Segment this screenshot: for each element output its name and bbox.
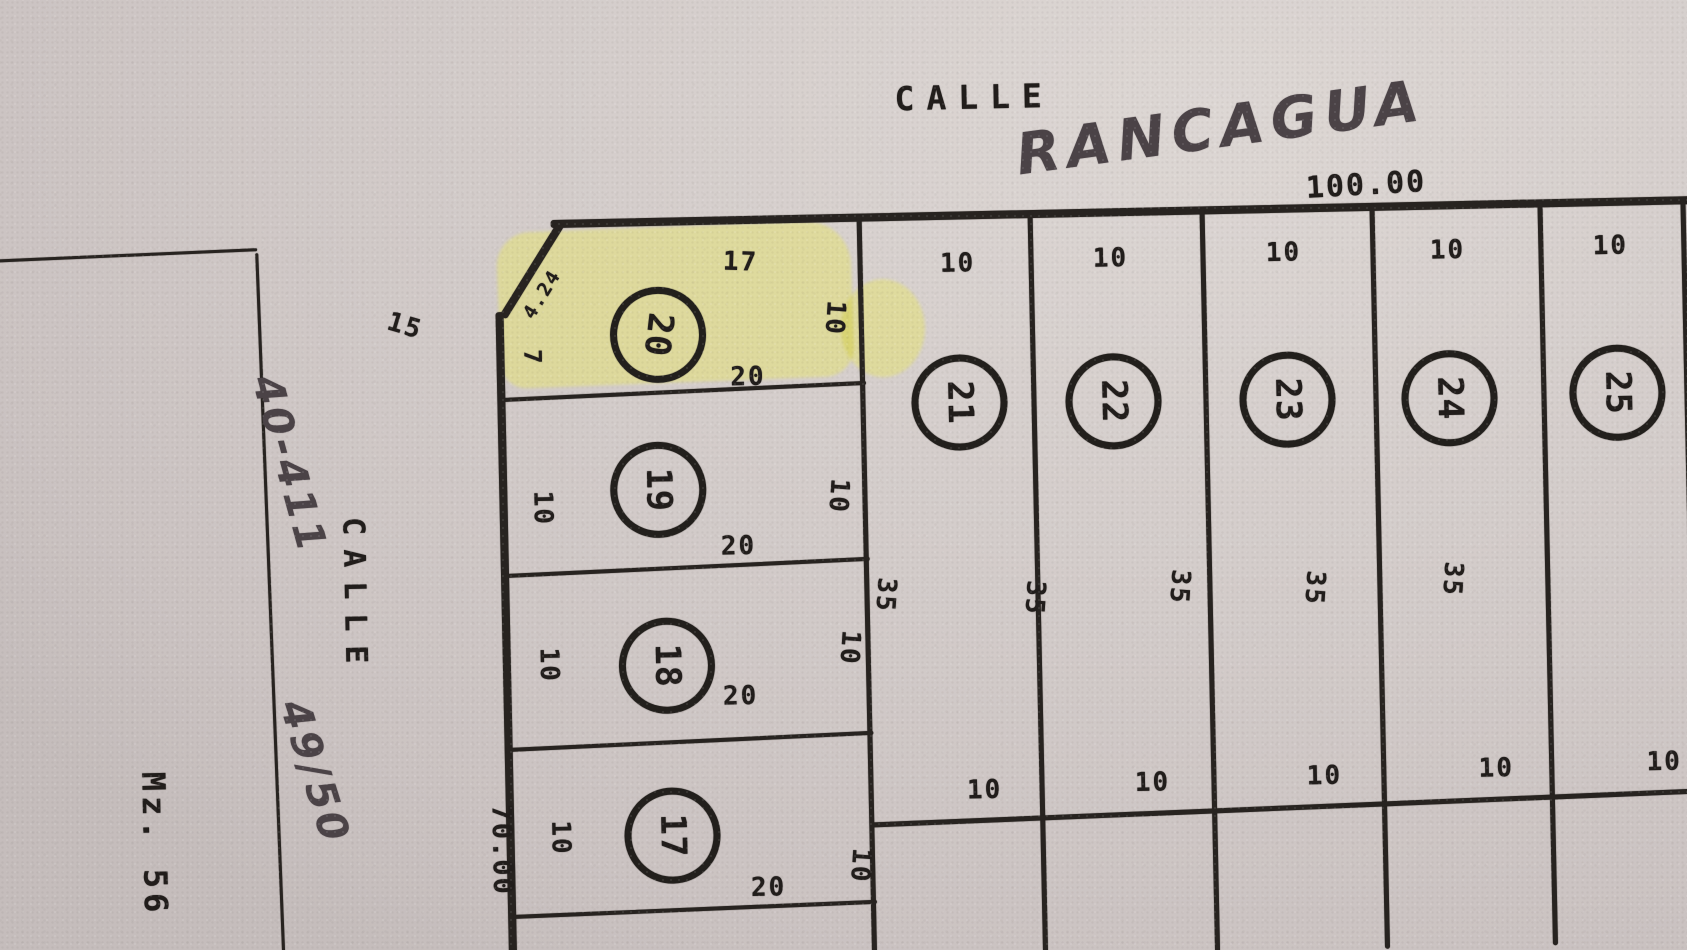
- lot23-top-dim: 10: [1265, 237, 1301, 268]
- lot19-bottom-dim: 20: [721, 531, 757, 562]
- lot21-circle: 21: [911, 354, 1009, 452]
- lot25-top-dim: 10: [1592, 231, 1628, 262]
- top-street-name: CALLE: [894, 76, 1054, 118]
- lot22-circle: 22: [1065, 352, 1163, 450]
- left-block-top-line: [0, 248, 257, 263]
- lot20-bottom-dim: 20: [730, 362, 766, 393]
- lot24-circle: 24: [1401, 349, 1499, 447]
- lot25-number: 25: [1597, 370, 1638, 415]
- lot24-side-dim: 35: [1298, 570, 1330, 607]
- lot25-side-dim: 35: [1436, 561, 1468, 598]
- lot20-top-dim: 17: [722, 247, 758, 278]
- divider-lot24-25: [1537, 201, 1558, 945]
- divider-lot22-23: [1199, 208, 1220, 950]
- lot24-top-dim: 10: [1429, 235, 1465, 266]
- lot17-bottom-dim: 20: [751, 872, 787, 903]
- lot18-number: 18: [646, 643, 687, 688]
- frontage-total-dim: 100.00: [1305, 164, 1427, 206]
- lot25-circle: 25: [1568, 344, 1666, 442]
- lot17-left-dim: 10: [545, 820, 576, 856]
- back-row-dim-1: 10: [967, 775, 1003, 806]
- left-street-name: CALLE: [335, 517, 373, 678]
- back-row-dim-2: 10: [1135, 767, 1171, 798]
- lot23-side-dim: 35: [1163, 568, 1195, 605]
- lot23-number: 23: [1267, 377, 1308, 422]
- lot22-number: 22: [1093, 379, 1134, 424]
- lot20-right-dim: 10: [819, 300, 851, 337]
- lot19-right-dim: 10: [822, 477, 854, 514]
- lot18-right-dim: 10: [833, 629, 865, 666]
- highlight-bleed: [840, 278, 926, 378]
- divider-lot19-18: [502, 557, 870, 578]
- block-depth-dim: 70.00: [485, 804, 518, 896]
- upper-left-dim-15: 15: [384, 307, 426, 346]
- manzana-label: Mz. 56: [134, 771, 175, 917]
- left-block-right-line: [255, 253, 285, 950]
- lot19-number: 19: [638, 467, 679, 512]
- lot18-bottom-dim: 20: [723, 681, 759, 712]
- lot17-circle: 17: [624, 787, 722, 885]
- handwritten-note-lower: 49/50: [270, 694, 360, 851]
- back-row-dim-3: 10: [1306, 761, 1342, 792]
- lot21-side-dim: 35: [869, 577, 901, 614]
- lot19-left-dim: 10: [527, 490, 558, 526]
- lot19-circle: 19: [609, 441, 707, 539]
- lot23-circle: 23: [1239, 351, 1337, 449]
- divider-lot23-24: [1369, 205, 1390, 949]
- lot17-number: 17: [652, 813, 693, 858]
- back-row-dim-5: 10: [1646, 747, 1682, 778]
- lot21-top-dim: 10: [940, 248, 976, 279]
- divider-lot18-17: [506, 731, 874, 752]
- lot22-side-dim: 35: [1018, 579, 1050, 616]
- plan-drawing: CALLE RANCAGUA 100.00 CALLE 40-411 49/50…: [0, 0, 1687, 950]
- lot18-left-dim: 10: [534, 647, 565, 683]
- lot24-number: 24: [1429, 376, 1470, 421]
- lot20-number: 20: [636, 311, 681, 360]
- lot20-left-dim: 7: [518, 349, 546, 366]
- main-block-top-boundary: [551, 196, 1687, 228]
- divider-lot25-right: [1680, 198, 1687, 942]
- handwritten-note-upper: 40-411: [242, 370, 336, 560]
- lot18-circle: 18: [618, 617, 716, 715]
- lot17-right-dim: 10: [844, 847, 876, 884]
- back-row-dim-4: 10: [1478, 753, 1514, 784]
- lot17-bottom-line: [513, 900, 877, 919]
- lot22-top-dim: 10: [1093, 243, 1129, 274]
- cadastral-plan-photo: CALLE RANCAGUA 100.00 CALLE 40-411 49/50…: [0, 0, 1687, 950]
- lot21-number: 21: [939, 380, 980, 425]
